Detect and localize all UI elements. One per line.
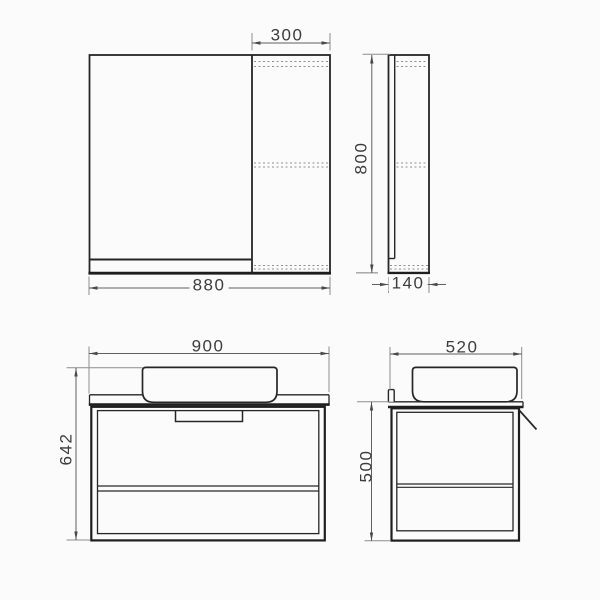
technical-drawing-sheet: 300 880 800 140 900 642 520 500: [0, 0, 600, 600]
dim-vanity-width: 900: [192, 338, 225, 355]
mirror-front-outline: [90, 55, 331, 273]
dim-vanity-depth: 520: [446, 339, 479, 356]
drawer-divider-front: [98, 486, 319, 491]
basin-side-outline: [413, 367, 518, 401]
vanity-side-view: [357, 347, 537, 541]
wall-bracket-line: [520, 411, 537, 430]
countertop-back-upstand: [388, 390, 394, 402]
side-cabinet-shelf-dashed-lines: [254, 62, 329, 270]
drawing-canvas: [0, 0, 600, 600]
drawer-divider-side: [397, 484, 513, 487]
drawer-handle-notch: [176, 411, 243, 422]
dim-642-geometry: [67, 368, 143, 540]
side-view-shelf-dashed-lines: [390, 62, 428, 270]
dim-mirror-side-cabinet-width: 300: [271, 27, 304, 44]
mirror-front-view: [88, 33, 331, 295]
vanity-front-cabinet-outline: [91, 407, 324, 541]
vanity-front-cabinet-inner-frame: [98, 411, 319, 534]
dim-vanity-height: 642: [58, 433, 75, 466]
dim-mirror-depth: 140: [389, 275, 428, 292]
basin-front-outline: [143, 367, 278, 402]
dim-mirror-height: 800: [353, 142, 370, 175]
dim-vanity-cabinet-height: 500: [358, 450, 375, 483]
vanity-side-cabinet-inner-frame: [397, 412, 513, 531]
vanity-front-view: [67, 347, 330, 541]
dim-mirror-total-width: 880: [190, 277, 229, 294]
vanity-side-cabinet-outline: [392, 408, 520, 540]
